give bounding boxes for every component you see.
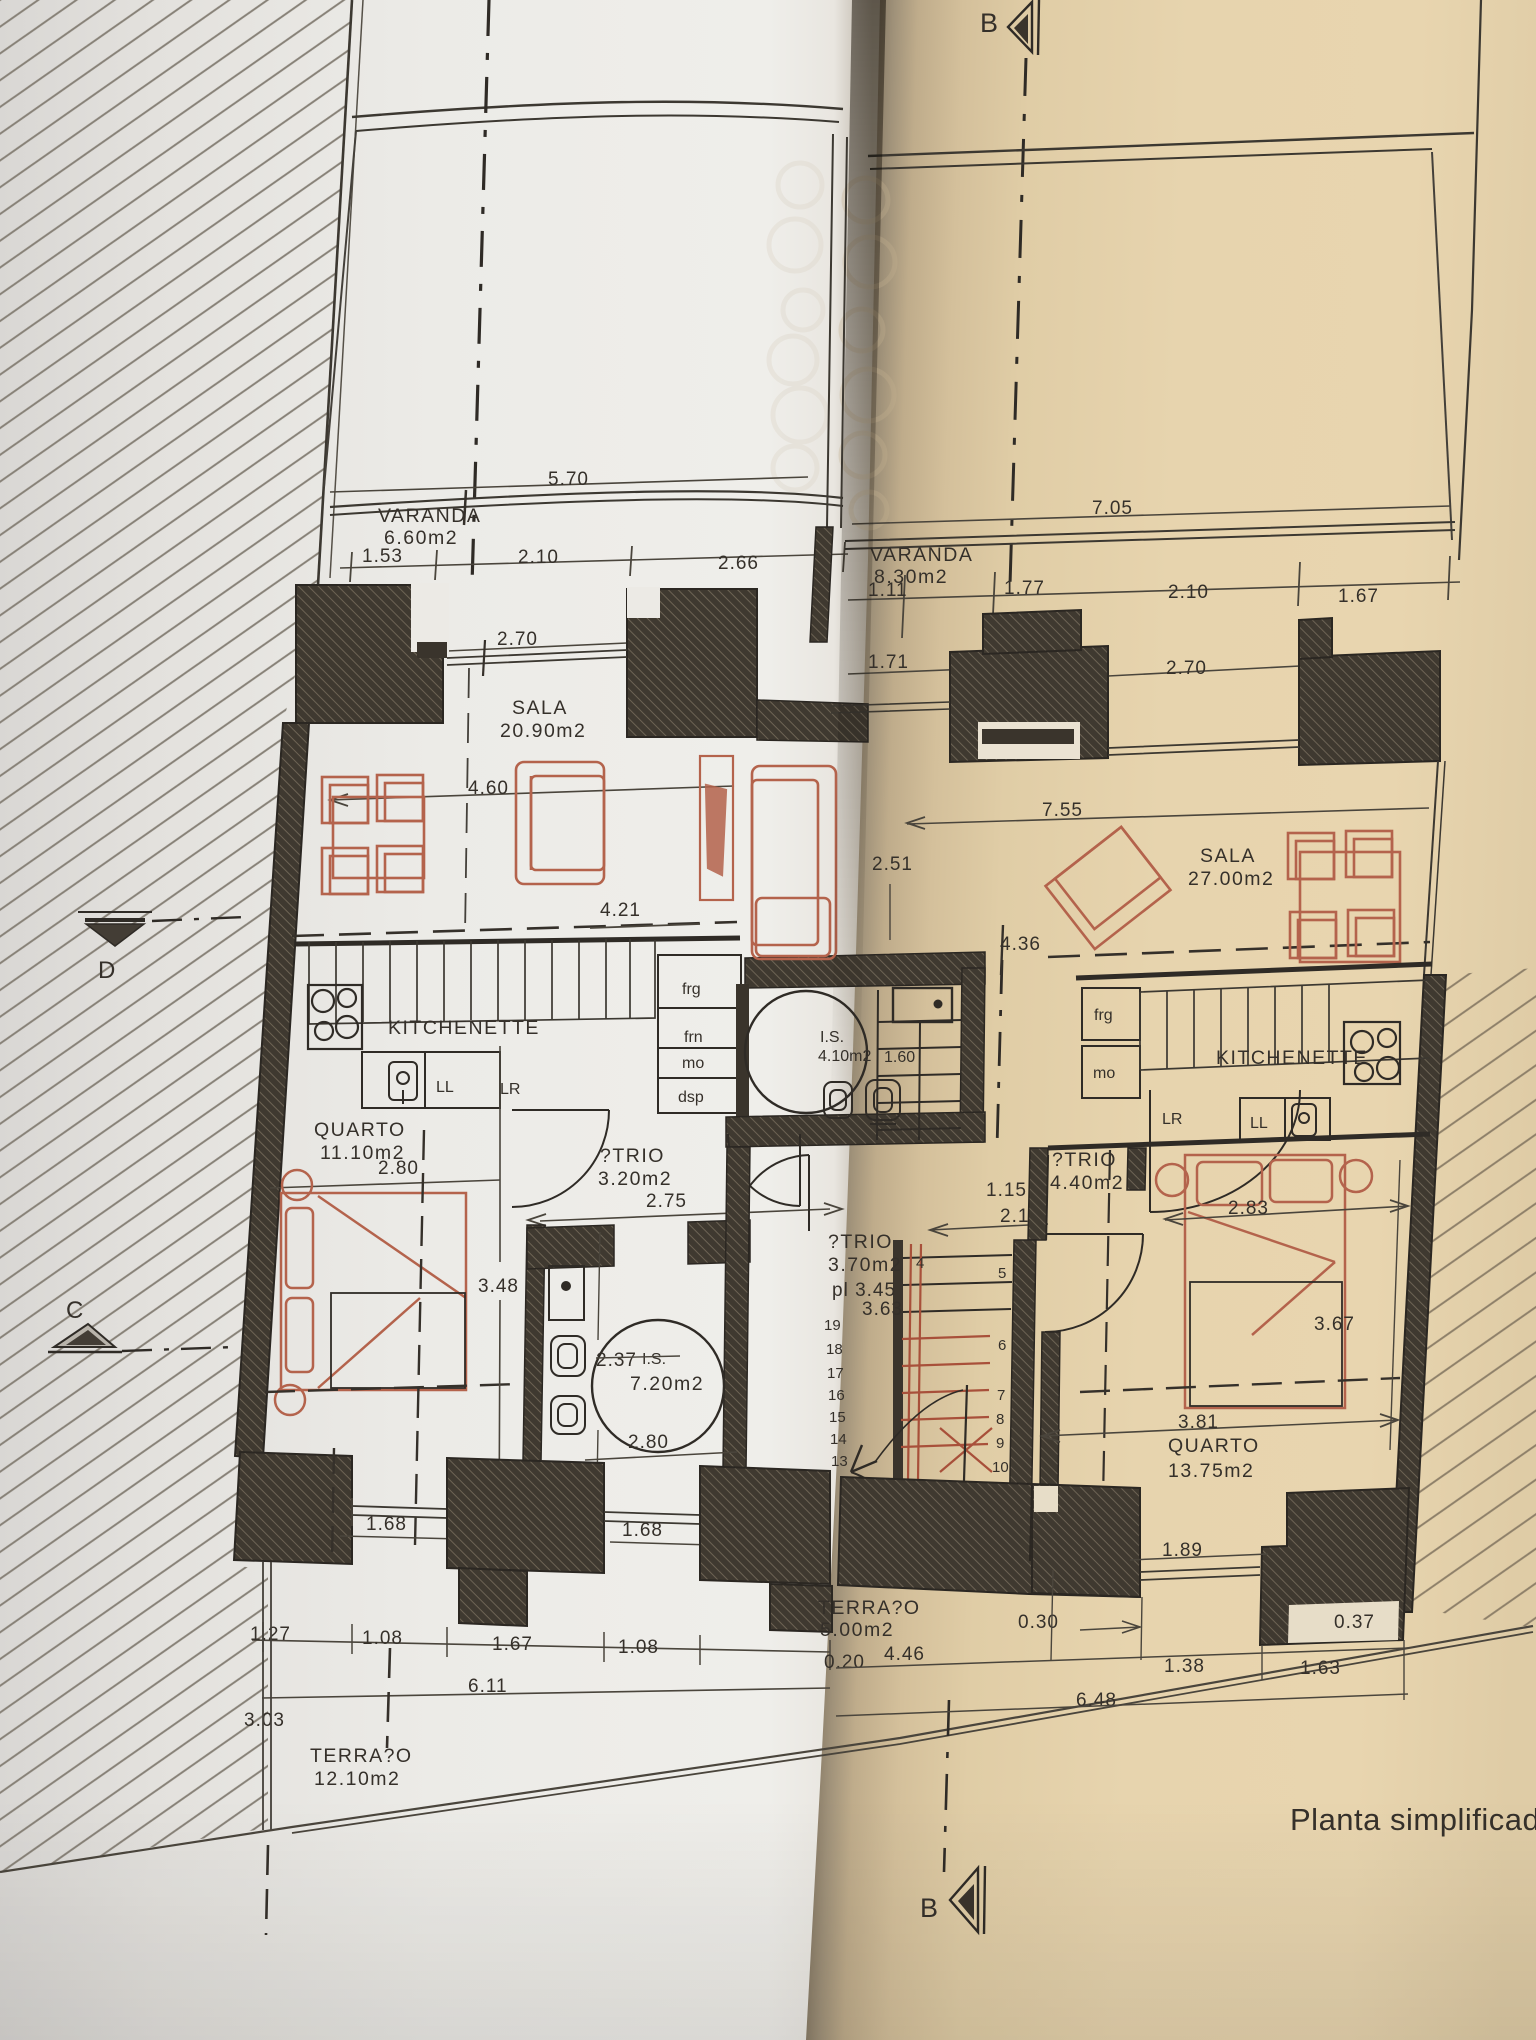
svg-text:?TRIO: ?TRIO	[600, 1145, 665, 1167]
svg-text:B: B	[980, 8, 999, 38]
svg-text:2.10: 2.10	[518, 547, 559, 568]
svg-text:2.80: 2.80	[628, 1432, 669, 1453]
svg-text:TERRA?O: TERRA?O	[818, 1597, 921, 1619]
svg-text:pl 3.45: pl 3.45	[832, 1280, 896, 1301]
svg-text:2.80: 2.80	[378, 1158, 419, 1179]
svg-text:10: 10	[992, 1459, 1009, 1476]
svg-text:7: 7	[997, 1387, 1005, 1404]
svg-text:frg: frg	[1094, 1007, 1113, 1024]
svg-text:13: 13	[831, 1453, 848, 1470]
svg-text:2.10: 2.10	[1168, 582, 1209, 603]
svg-text:?TRIO: ?TRIO	[828, 1231, 893, 1253]
svg-text:18: 18	[826, 1341, 843, 1358]
svg-text:4.46: 4.46	[884, 1644, 925, 1665]
svg-text:2.66: 2.66	[718, 553, 759, 574]
svg-text:LR: LR	[1162, 1111, 1182, 1128]
svg-text:4.21: 4.21	[600, 900, 641, 921]
svg-text:C: C	[66, 1297, 84, 1324]
svg-text:VARANDA: VARANDA	[870, 544, 973, 566]
svg-text:0.20: 0.20	[824, 1652, 865, 1673]
svg-text:6.48: 6.48	[1076, 1690, 1117, 1711]
svg-text:QUARTO: QUARTO	[1168, 1435, 1260, 1457]
svg-text:1.60: 1.60	[884, 1049, 915, 1066]
svg-text:7.20m2: 7.20m2	[630, 1373, 704, 1395]
svg-text:3.67: 3.67	[1314, 1314, 1355, 1335]
svg-text:SALA: SALA	[1200, 845, 1256, 867]
svg-text:2.37: 2.37	[596, 1350, 637, 1371]
svg-text:1.08: 1.08	[362, 1628, 403, 1649]
svg-text:13.75m2: 13.75m2	[1168, 1460, 1254, 1482]
svg-text:2.70: 2.70	[1166, 658, 1207, 679]
svg-text:16: 16	[828, 1387, 845, 1404]
svg-text:1.67: 1.67	[492, 1634, 533, 1655]
svg-text:5.70: 5.70	[548, 469, 589, 490]
svg-text:dsp: dsp	[678, 1089, 704, 1106]
svg-text:KITCHENETTE: KITCHENETTE	[1216, 1047, 1368, 1069]
svg-text:19: 19	[824, 1317, 841, 1334]
svg-text:LL: LL	[1250, 1115, 1268, 1132]
svg-text:6: 6	[998, 1337, 1006, 1354]
svg-text:1.63: 1.63	[1300, 1658, 1341, 1679]
svg-text:8: 8	[996, 1411, 1004, 1428]
svg-text:20.90m2: 20.90m2	[500, 720, 586, 742]
svg-text:2.75: 2.75	[646, 1191, 687, 1212]
svg-text:4: 4	[916, 1255, 924, 1272]
svg-text:27.00m2: 27.00m2	[1188, 868, 1274, 890]
svg-text:3.81: 3.81	[1178, 1412, 1219, 1433]
svg-text:3.48: 3.48	[478, 1276, 519, 1297]
svg-text:LR: LR	[500, 1081, 520, 1098]
svg-text:LL: LL	[436, 1079, 454, 1096]
svg-text:3.03: 3.03	[244, 1710, 285, 1731]
svg-text:1.08: 1.08	[618, 1637, 659, 1658]
svg-text:0.37: 0.37	[1334, 1612, 1375, 1633]
svg-text:2.70: 2.70	[497, 629, 538, 650]
svg-text:SALA: SALA	[512, 697, 568, 719]
svg-text:QUARTO: QUARTO	[314, 1119, 406, 1141]
svg-text:1.68: 1.68	[622, 1520, 663, 1541]
svg-text:D: D	[98, 957, 116, 984]
svg-text:1.15: 1.15	[986, 1180, 1027, 1201]
svg-text:KITCHENETTE: KITCHENETTE	[388, 1017, 540, 1039]
svg-text:3.63: 3.63	[862, 1299, 903, 1320]
svg-text:6.11: 6.11	[468, 1676, 508, 1697]
svg-text:3.20m2: 3.20m2	[598, 1168, 672, 1190]
svg-text:7.05: 7.05	[1092, 498, 1133, 519]
svg-text:mo: mo	[682, 1055, 704, 1072]
svg-text:7.55: 7.55	[1042, 800, 1083, 821]
svg-text:1.38: 1.38	[1164, 1656, 1205, 1677]
svg-text:mo: mo	[1093, 1065, 1115, 1082]
svg-text:0.30: 0.30	[1018, 1612, 1059, 1633]
svg-text:1.71: 1.71	[868, 652, 909, 673]
svg-text:5.00m2: 5.00m2	[820, 1619, 894, 1641]
svg-text:4.60: 4.60	[468, 778, 509, 799]
svg-text:4.40m2: 4.40m2	[1050, 1172, 1124, 1194]
svg-text:2.51: 2.51	[872, 854, 913, 875]
svg-text:I.S.: I.S.	[642, 1351, 666, 1368]
svg-text:9: 9	[996, 1435, 1004, 1452]
svg-text:3.70m2: 3.70m2	[828, 1254, 902, 1276]
svg-text:17: 17	[827, 1365, 844, 1382]
svg-text:1.11: 1.11	[868, 580, 908, 601]
svg-text:5: 5	[998, 1265, 1006, 1282]
svg-text:1.53: 1.53	[362, 546, 403, 567]
svg-text:4.36: 4.36	[1000, 934, 1041, 955]
svg-text:frn: frn	[684, 1029, 703, 1046]
svg-text:1.77: 1.77	[1004, 578, 1045, 599]
svg-text:14: 14	[830, 1431, 847, 1448]
svg-text:?TRIO: ?TRIO	[1052, 1149, 1117, 1171]
svg-text:frg: frg	[682, 981, 701, 998]
svg-text:2.83: 2.83	[1228, 1198, 1269, 1219]
svg-text:TERRA?O: TERRA?O	[310, 1745, 413, 1767]
svg-text:1.68: 1.68	[366, 1514, 407, 1535]
svg-text:12.10m2: 12.10m2	[314, 1768, 400, 1790]
svg-text:1.67: 1.67	[1338, 586, 1379, 607]
svg-text:15: 15	[829, 1409, 846, 1426]
